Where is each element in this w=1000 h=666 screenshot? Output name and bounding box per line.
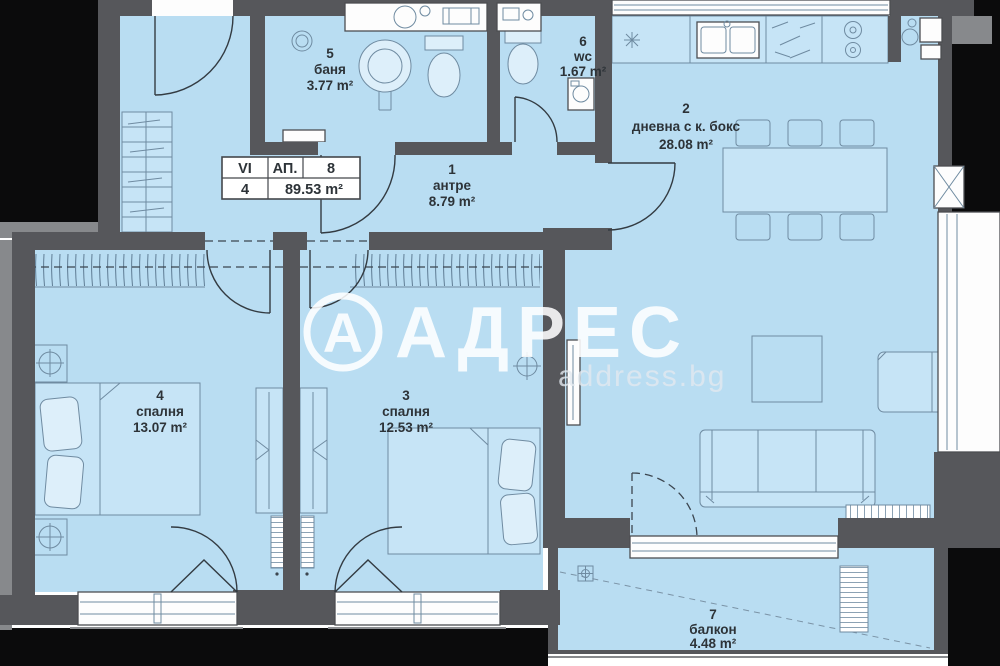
bedroom3-furniture bbox=[388, 428, 540, 554]
room7-name: балкон bbox=[689, 622, 736, 637]
kitchen-sink-icon bbox=[697, 21, 759, 58]
kitchen-counter bbox=[612, 16, 888, 63]
wardrobe-left bbox=[256, 388, 283, 513]
room5-number: 5 bbox=[326, 46, 334, 61]
table-floor: VI bbox=[238, 161, 252, 177]
entrance-opening bbox=[152, 0, 233, 16]
room1-name: антре bbox=[433, 178, 472, 193]
table-ap-label: АП. bbox=[273, 161, 298, 177]
right-window bbox=[938, 212, 1000, 452]
room6-number: 6 bbox=[579, 34, 587, 49]
room1-number: 1 bbox=[448, 162, 456, 177]
exterior-bottom-left bbox=[0, 628, 548, 666]
dining-table bbox=[723, 148, 887, 212]
washing-machine-icon bbox=[568, 78, 594, 110]
entry-wardrobe bbox=[122, 112, 172, 232]
room7-number: 7 bbox=[709, 607, 717, 622]
armchair bbox=[878, 352, 944, 412]
room3-area: 12.53 m² bbox=[379, 420, 434, 435]
exterior-top-left bbox=[0, 0, 98, 222]
bed-bedroom4 bbox=[35, 383, 200, 515]
floor-plan-page: VI АП. 8 4 89.53 m² 1 антре 8.79 m² 2 дн… bbox=[0, 0, 1000, 666]
exterior-bottom-right bbox=[948, 548, 1000, 666]
room6-area: 1.67 m² bbox=[560, 64, 607, 79]
wc-shaft bbox=[497, 3, 541, 31]
living-radiator bbox=[846, 505, 930, 519]
toilet-icon-bath bbox=[425, 36, 463, 97]
brand-logo-letter: А bbox=[323, 301, 363, 364]
sofa bbox=[700, 430, 875, 507]
shaft-x-box bbox=[934, 166, 964, 208]
room6-name: wc bbox=[573, 49, 593, 64]
toilet-icon-wc bbox=[505, 30, 541, 84]
room2-name: дневна с к. бокс bbox=[632, 119, 741, 134]
wardrobe-band-bedroom-3 bbox=[350, 252, 540, 286]
bedroom3-window bbox=[335, 592, 500, 625]
info-table: VI АП. 8 4 89.53 m² bbox=[222, 157, 360, 199]
balcony-radiator bbox=[840, 566, 868, 632]
bath-shaft-vanity bbox=[345, 3, 487, 31]
bed-bedroom3 bbox=[388, 428, 540, 554]
room3-name: спалня bbox=[382, 404, 430, 419]
room5-area: 3.77 m² bbox=[307, 78, 354, 93]
table-rooms-count: 4 bbox=[241, 182, 249, 198]
brand-site-url: address.bg bbox=[558, 360, 726, 393]
table-total-area: 89.53 m² bbox=[285, 182, 343, 198]
room4-area: 13.07 m² bbox=[133, 420, 188, 435]
kitchen-light-icon bbox=[624, 32, 640, 48]
kitchen-window bbox=[612, 0, 890, 15]
room7-area: 4.48 m² bbox=[690, 636, 737, 651]
wardrobe-right bbox=[300, 388, 327, 513]
table-ap-number: 8 bbox=[327, 161, 335, 177]
room2-area: 28.08 m² bbox=[659, 137, 714, 152]
room5-name: баня bbox=[314, 62, 346, 77]
room2-number: 2 bbox=[682, 101, 690, 116]
bedroom4-window bbox=[78, 592, 237, 625]
room1-area: 8.79 m² bbox=[429, 194, 476, 209]
wardrobe-band-bedroom-4 bbox=[18, 252, 205, 286]
room4-name: спалня bbox=[136, 404, 184, 419]
floor-plan-drawing: VI АП. 8 4 89.53 m² 1 антре 8.79 m² 2 дн… bbox=[0, 0, 1000, 666]
room4-number: 4 bbox=[156, 388, 164, 403]
bath-shelf bbox=[283, 130, 325, 142]
balcony-window bbox=[630, 536, 838, 558]
room3-number: 3 bbox=[402, 388, 410, 403]
